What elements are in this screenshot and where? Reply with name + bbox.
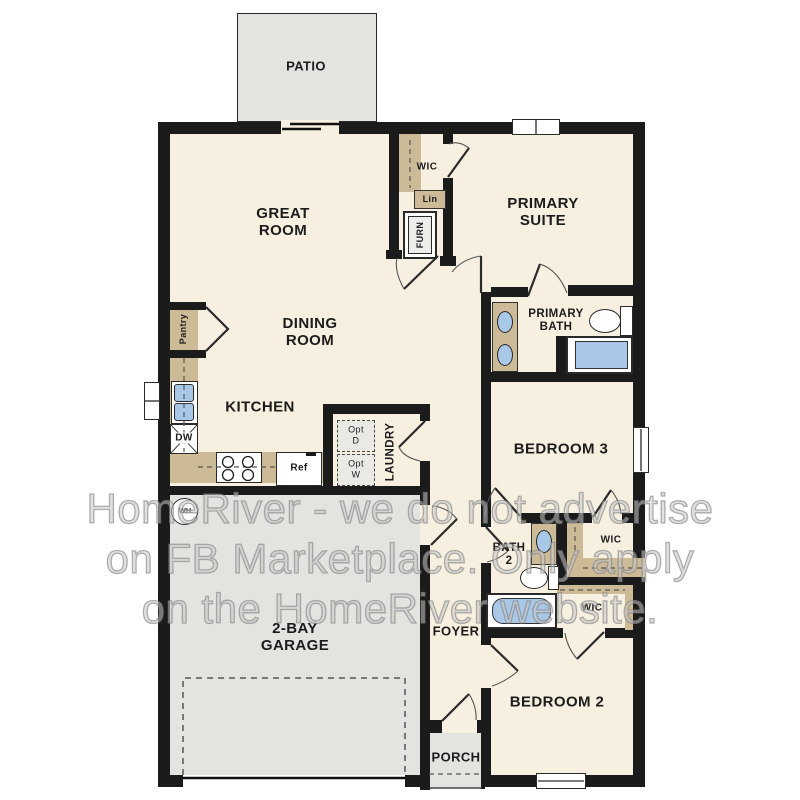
door-and-detail-overlay <box>0 0 800 800</box>
refrigerator-label: Ref <box>290 463 307 474</box>
linen-label: Lin <box>423 194 438 205</box>
patio-label: PATIO <box>286 59 326 74</box>
opt-washer-label: OptW <box>348 459 364 480</box>
range-burners <box>223 457 254 481</box>
laundry-label: LAUNDRY <box>385 423 398 482</box>
garage-apron-dashes <box>183 678 405 775</box>
bedroom2-label: BEDROOM 2 <box>510 694 604 711</box>
dishwasher-label: DW <box>174 433 193 444</box>
kitchen-label: KITCHEN <box>225 399 294 416</box>
pantry-label: Pantry <box>178 314 189 344</box>
watermark-text: HomeRiver - we do not advertise on FB Ma… <box>0 484 800 634</box>
bedroom3-label: BEDROOM 3 <box>514 441 608 458</box>
great-room-label: GREATROOM <box>256 205 309 239</box>
dining-room-label: DININGROOM <box>283 315 338 349</box>
floor-plan: PATIO GREATROOM WIC Lin FURN PRIMARYSUIT… <box>0 0 800 800</box>
furnace-label: FURN <box>415 222 426 249</box>
porch-label: PORCH <box>432 750 481 765</box>
primary-wic-label: WIC <box>417 162 438 173</box>
primary-bath-label: PRIMARYBATH <box>528 308 583 334</box>
opt-dryer-label: OptD <box>348 425 364 446</box>
primary-suite-label: PRIMARYSUITE <box>507 195 578 229</box>
